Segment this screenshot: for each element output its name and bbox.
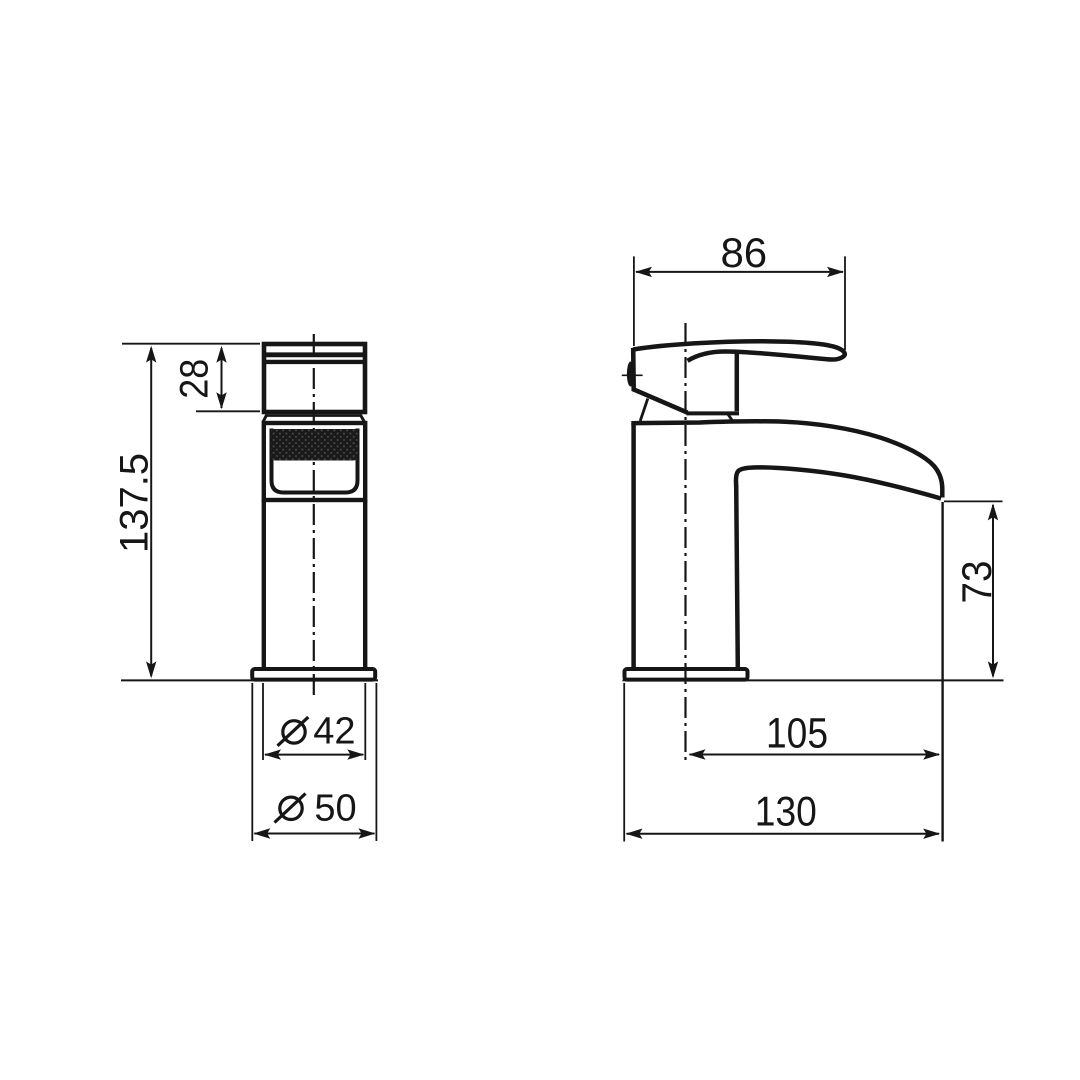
svg-text:50: 50 <box>314 788 356 830</box>
svg-text:137.5: 137.5 <box>113 453 157 553</box>
svg-text:42: 42 <box>313 711 355 753</box>
svg-text:86: 86 <box>720 229 767 276</box>
svg-text:73: 73 <box>953 561 1000 604</box>
svg-text:130: 130 <box>755 788 817 835</box>
svg-text:105: 105 <box>766 710 828 758</box>
svg-text:28: 28 <box>173 359 217 399</box>
